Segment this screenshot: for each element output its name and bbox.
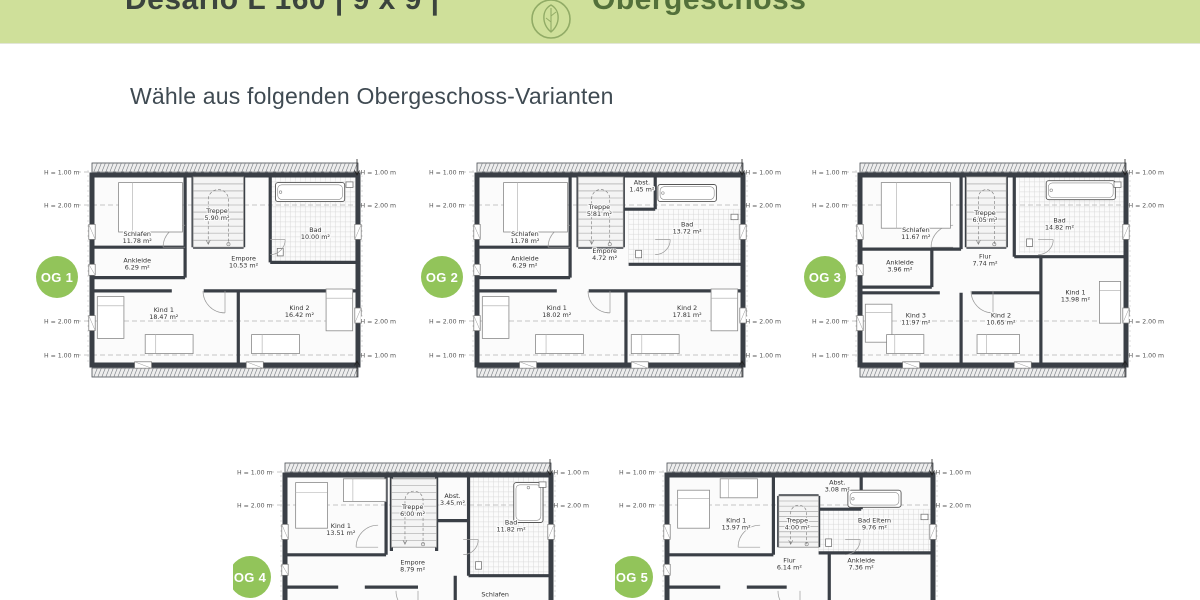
variant-badge-og2[interactable]: OG 2	[421, 256, 463, 298]
svg-text:Schlafen11.78 m²: Schlafen11.78 m²	[510, 230, 540, 245]
svg-text:H = 1.00 m: H = 1.00 m	[429, 352, 465, 359]
svg-text:H = 1.00 m: H = 1.00 m	[360, 352, 396, 359]
svg-text:H = 2.00 m: H = 2.00 m	[44, 318, 80, 325]
svg-text:H = 2.00 m: H = 2.00 m	[812, 318, 848, 325]
svg-text:H = 1.00 m: H = 1.00 m	[745, 169, 781, 176]
svg-text:Ankleide6.29 m²: Ankleide6.29 m²	[123, 256, 151, 271]
floorplan-drawing-og5: H = 1.00 mH = 1.00 mH = 2.00 mH = 2.00 m…	[615, 455, 975, 600]
svg-text:H = 1.00 m: H = 1.00 m	[812, 169, 848, 176]
svg-text:H = 1.00 m: H = 1.00 m	[237, 469, 273, 476]
floorplan-drawing-og4: H = 1.00 mH = 1.00 mH = 2.00 mH = 2.00 m…	[233, 455, 593, 600]
svg-text:H = 2.00 m: H = 2.00 m	[360, 202, 396, 209]
svg-text:H = 2.00 m: H = 2.00 m	[360, 318, 396, 325]
svg-text:H = 1.00 m: H = 1.00 m	[360, 169, 396, 176]
svg-text:H = 1.00 m: H = 1.00 m	[619, 469, 655, 476]
svg-text:H = 2.00 m: H = 2.00 m	[429, 202, 465, 209]
page-header: Desario L 160 | 9 x 9 | Obergeschoss	[0, 0, 1200, 44]
svg-text:H = 2.00 m: H = 2.00 m	[429, 318, 465, 325]
svg-text:H = 1.00 m: H = 1.00 m	[745, 352, 781, 359]
floorplan-variant-og1[interactable]: OG 1 H = 1.00 mH = 1.00 mH = 2.00 mH = 2…	[40, 155, 400, 387]
variant-badge-og1[interactable]: OG 1	[36, 256, 78, 298]
svg-text:Schlafen: Schlafen	[481, 591, 509, 599]
svg-text:H = 2.00 m: H = 2.00 m	[619, 502, 655, 509]
page-title: Desario L 160 | 9 x 9 |	[125, 0, 440, 17]
svg-text:H = 2.00 m: H = 2.00 m	[44, 202, 80, 209]
svg-text:Treppe6.00 m²: Treppe6.00 m²	[400, 503, 425, 518]
svg-text:H = 2.00 m: H = 2.00 m	[745, 318, 781, 325]
svg-text:H = 1.00 m: H = 1.00 m	[429, 169, 465, 176]
floorplan-variant-og4[interactable]: OG 4 H = 1.00 mH = 1.00 mH = 2.00 mH = 2…	[233, 455, 593, 600]
svg-text:Treppe4.00 m²: Treppe4.00 m²	[785, 517, 810, 532]
svg-text:H = 2.00 m: H = 2.00 m	[237, 502, 273, 509]
svg-text:Treppe6.05 m²: Treppe6.05 m²	[972, 209, 997, 224]
svg-text:H = 1.00 m: H = 1.00 m	[553, 469, 589, 476]
svg-text:Empore8.79 m²: Empore8.79 m²	[400, 558, 425, 573]
svg-text:H = 2.00 m: H = 2.00 m	[745, 202, 781, 209]
floorplan-drawing-og2: H = 1.00 mH = 1.00 mH = 2.00 mH = 2.00 m…	[425, 155, 785, 387]
svg-text:Empore4.72 m²: Empore4.72 m²	[592, 247, 617, 262]
svg-text:H = 1.00 m: H = 1.00 m	[44, 352, 80, 359]
variant-badge-og3[interactable]: OG 3	[804, 256, 846, 298]
svg-text:Empore10.53 m²: Empore10.53 m²	[229, 255, 259, 270]
svg-text:H = 1.00 m: H = 1.00 m	[812, 352, 848, 359]
svg-text:H = 1.00 m: H = 1.00 m	[44, 169, 80, 176]
floorplan-variant-og3[interactable]: OG 3 H = 1.00 mH = 1.00 mH = 2.00 mH = 2…	[808, 155, 1168, 387]
svg-text:Bad Eltern9.76 m²: Bad Eltern9.76 m²	[858, 517, 891, 532]
svg-text:H = 1.00 m: H = 1.00 m	[1128, 169, 1164, 176]
svg-text:H = 2.00 m: H = 2.00 m	[812, 202, 848, 209]
svg-text:H = 2.00 m: H = 2.00 m	[1128, 202, 1164, 209]
svg-text:H = 2.00 m: H = 2.00 m	[1128, 318, 1164, 325]
floorplan-variant-og2[interactable]: OG 2 H = 1.00 mH = 1.00 mH = 2.00 mH = 2…	[425, 155, 785, 387]
svg-text:H = 1.00 m: H = 1.00 m	[1128, 352, 1164, 359]
floorplan-drawing-og1: H = 1.00 mH = 1.00 mH = 2.00 mH = 2.00 m…	[40, 155, 400, 387]
svg-text:Ankleide3.96 m²: Ankleide3.96 m²	[886, 258, 914, 273]
subtitle: Wähle aus folgenden Obergeschoss-Variant…	[130, 83, 614, 110]
svg-text:Schlafen11.67 m²: Schlafen11.67 m²	[901, 226, 931, 241]
svg-text:H = 1.00 m: H = 1.00 m	[935, 469, 971, 476]
svg-text:Schlafen11.78 m²: Schlafen11.78 m²	[123, 230, 153, 245]
page-title-floor: Obergeschoss	[592, 0, 806, 17]
svg-text:Ankleide7.36 m²: Ankleide7.36 m²	[847, 556, 875, 571]
svg-text:Ankleide6.29 m²: Ankleide6.29 m²	[511, 255, 539, 270]
floorplan-drawing-og3: H = 1.00 mH = 1.00 mH = 2.00 mH = 2.00 m…	[808, 155, 1168, 387]
svg-text:H = 2.00 m: H = 2.00 m	[935, 502, 971, 509]
svg-text:Treppe5.90 m²: Treppe5.90 m²	[204, 207, 229, 222]
floorplan-variant-og5[interactable]: OG 5 H = 1.00 mH = 1.00 mH = 2.00 mH = 2…	[615, 455, 975, 600]
svg-text:H = 2.00 m: H = 2.00 m	[553, 502, 589, 509]
svg-text:Treppe5.81 m²: Treppe5.81 m²	[587, 203, 612, 218]
leaf-circle-icon	[528, 0, 574, 42]
